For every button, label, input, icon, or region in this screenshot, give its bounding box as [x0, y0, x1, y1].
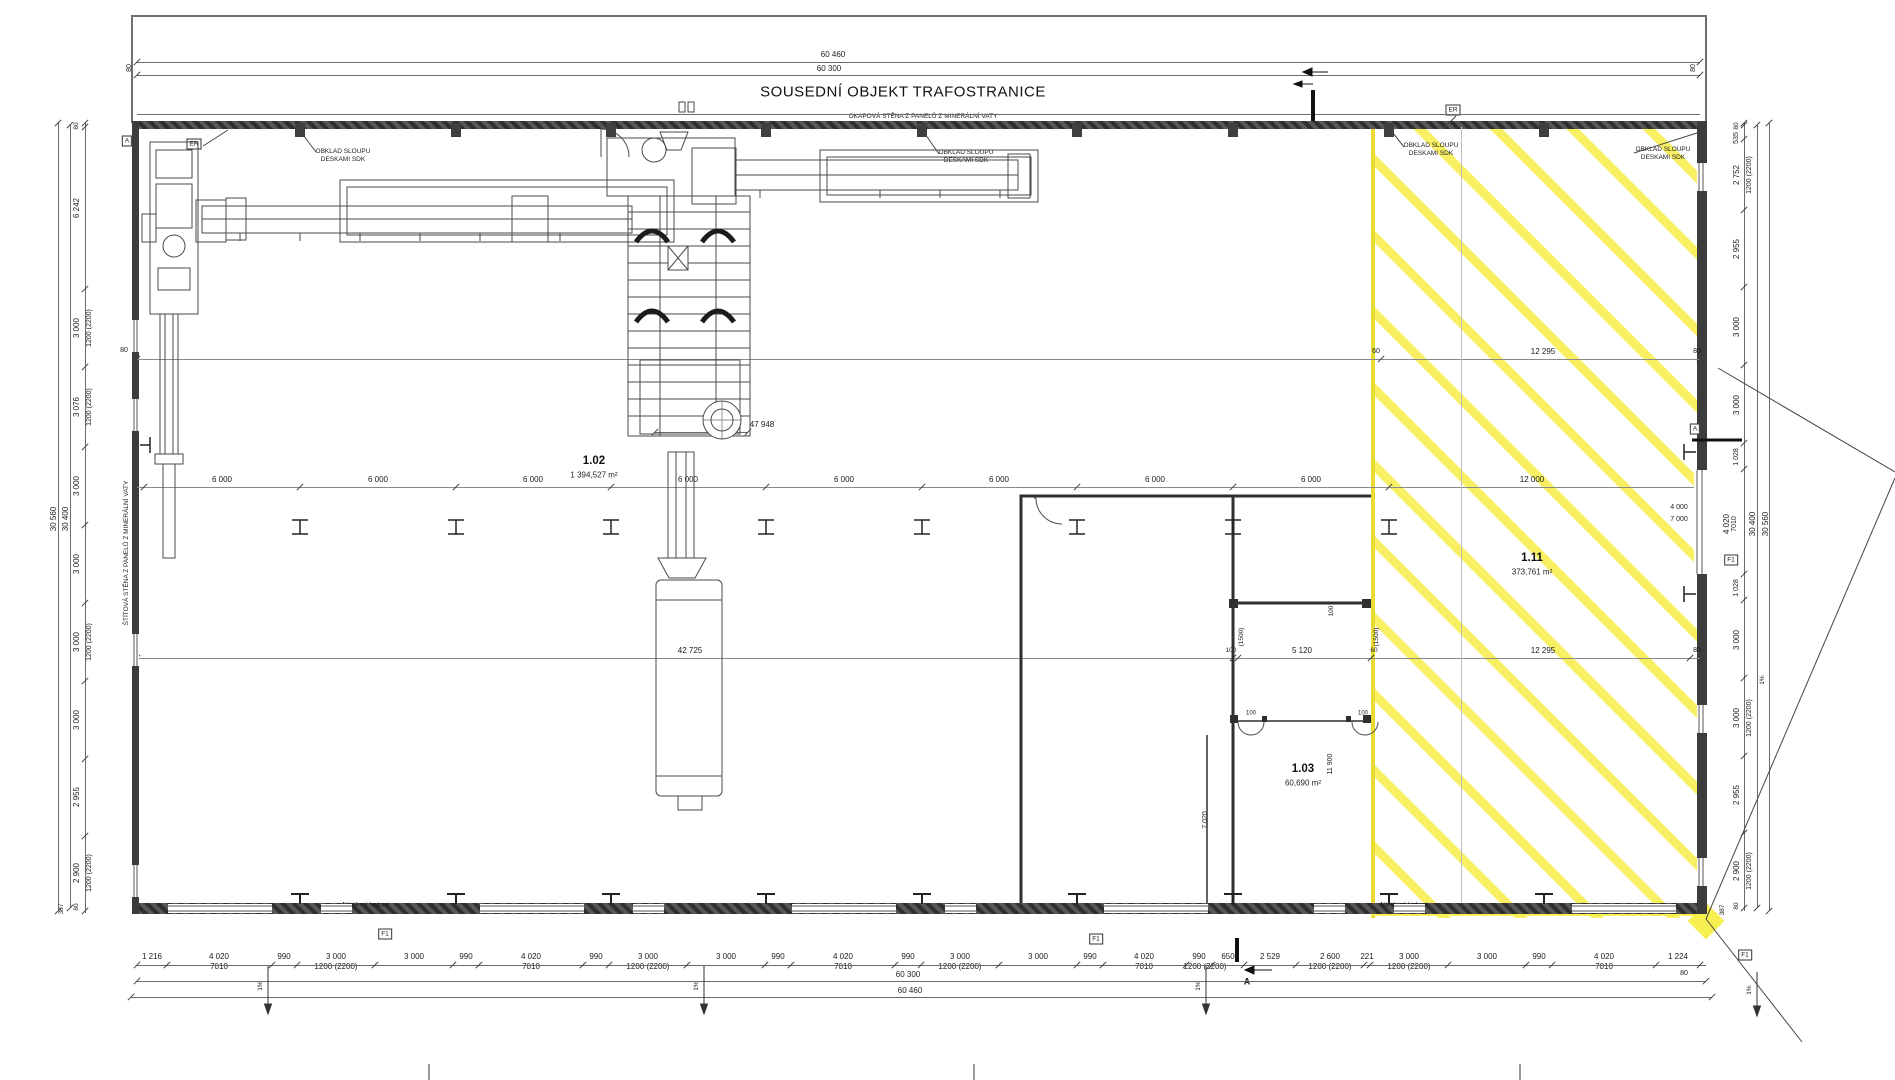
floor-plan-drawing: SOUSEDNÍ OBJEKT TRAFOSTRANICE 60 46060 3… — [0, 0, 1895, 1080]
drawing-linework — [0, 0, 1895, 1080]
